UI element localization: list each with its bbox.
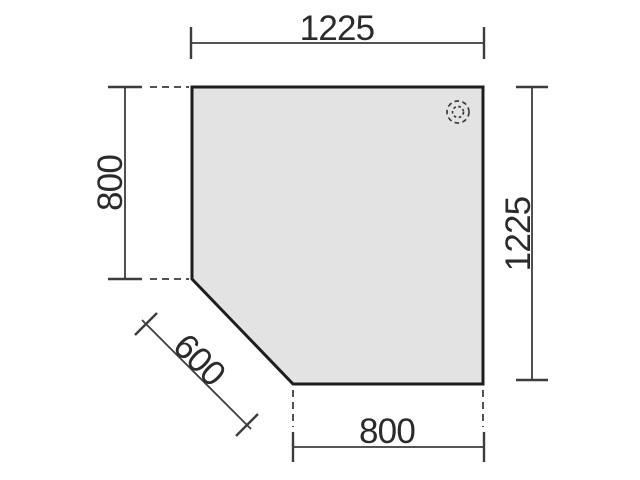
- dimension-label-left-height: 800: [91, 155, 130, 211]
- dimension-label-diagonal-edge: 600: [166, 326, 233, 393]
- page: { "diagram": { "labels": { "top_width": …: [0, 0, 640, 480]
- dimension-bottom-width: 800: [293, 390, 484, 462]
- drawing-canvas: 1225 800 1225 600: [0, 0, 640, 480]
- dimension-left-height: 800: [91, 87, 189, 279]
- desk-surface-shape: [192, 87, 483, 384]
- dimension-right-height: 1225: [499, 87, 548, 380]
- dimension-label-top-width: 1225: [300, 9, 375, 48]
- drawing-svg: 1225 800 1225 600: [0, 0, 640, 480]
- desk-surface: [192, 87, 483, 384]
- dimension-top-width: 1225: [191, 9, 484, 59]
- dimension-label-bottom-width: 800: [359, 412, 415, 451]
- dimension-label-right-height: 1225: [499, 197, 538, 272]
- dimension-diagonal-edge: 600: [135, 313, 258, 436]
